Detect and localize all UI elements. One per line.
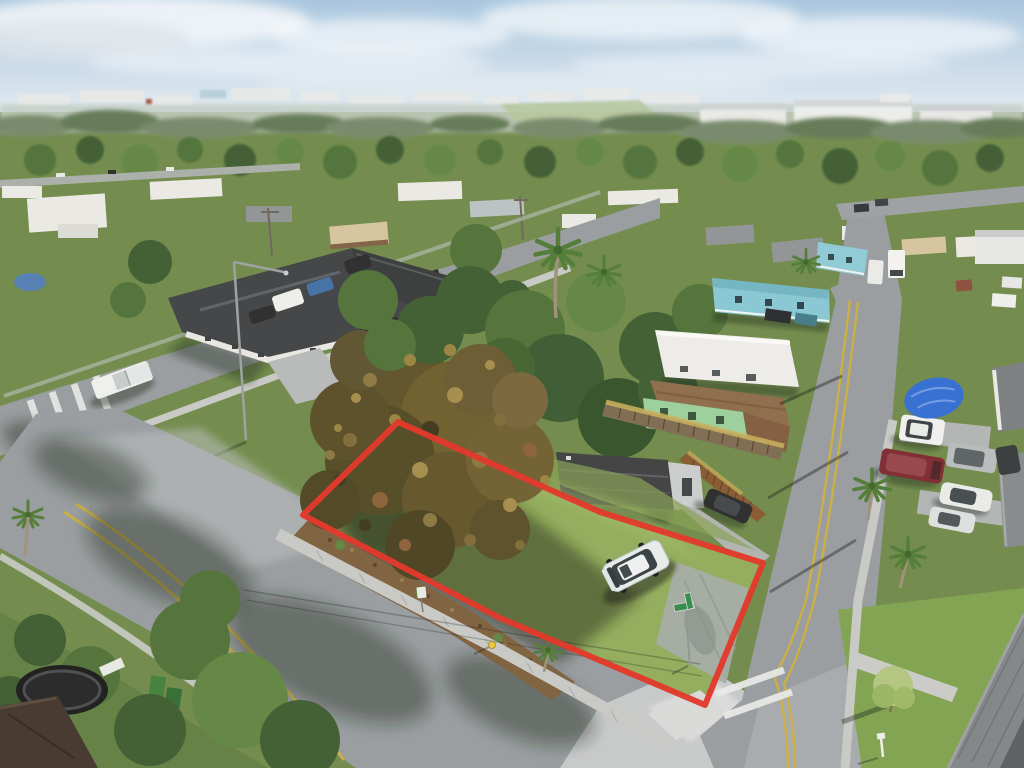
warm-light-wash <box>0 112 1024 768</box>
aerial-photo-stage <box>0 0 1024 768</box>
aerial-photo <box>0 0 1024 768</box>
